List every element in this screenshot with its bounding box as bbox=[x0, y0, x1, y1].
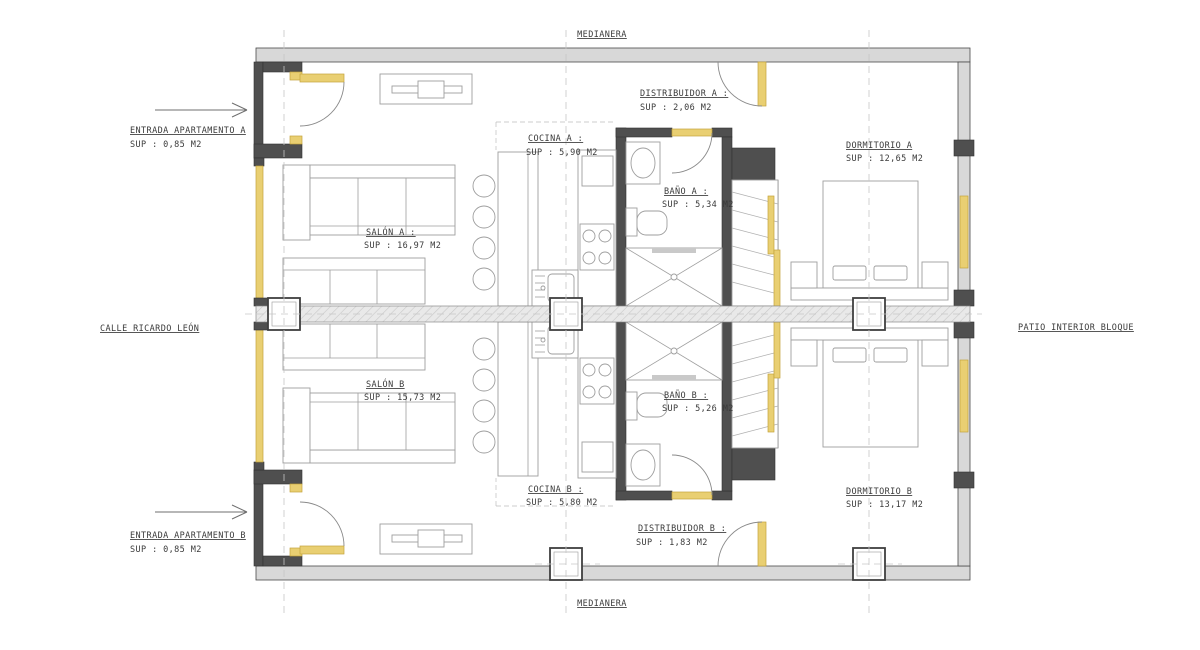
label-salon-b-title: SALÓN B bbox=[366, 378, 405, 390]
label-dormitorio-a-area: SUP : 12,65 M2 bbox=[846, 154, 923, 164]
label-patio: PATIO INTERIOR BLOQUE bbox=[1018, 323, 1134, 333]
label-distribuidor-a-area: SUP : 2,06 M2 bbox=[640, 103, 712, 113]
label-cocina-b-area: SUP : 5,80 M2 bbox=[526, 498, 598, 508]
label-entrance-a-title: ENTRADA APARTAMENTO A bbox=[130, 126, 246, 136]
entrance-a-arrow-icon bbox=[155, 103, 247, 117]
label-cocina-b-title: COCINA B : bbox=[528, 485, 583, 495]
label-dormitorio-b-title: DORMITORIO B bbox=[846, 487, 912, 497]
label-street: CALLE RICARDO LEÓN bbox=[100, 322, 199, 334]
label-medianera-top: MEDIANERA bbox=[577, 30, 627, 40]
label-cocina-a-title: COCINA A : bbox=[528, 134, 583, 144]
apartment-a-plan bbox=[254, 48, 974, 306]
label-salon-b-area: SUP : 15,73 M2 bbox=[364, 393, 441, 403]
label-distribuidor-a-title: DISTRIBUIDOR A : bbox=[640, 89, 728, 99]
label-distribuidor-b-area: SUP : 1,83 M2 bbox=[636, 538, 708, 548]
apartment-b-plan bbox=[254, 322, 974, 580]
label-medianera-bottom: MEDIANERA bbox=[577, 599, 627, 609]
label-dormitorio-a-title: DORMITORIO A bbox=[846, 141, 912, 151]
label-salon-a-title: SALÓN A : bbox=[366, 226, 416, 238]
label-bano-a-area: SUP : 5,34 M2 bbox=[662, 200, 734, 210]
label-entrance-b-title: ENTRADA APARTAMENTO B bbox=[130, 531, 246, 541]
label-dormitorio-b-area: SUP : 13,17 M2 bbox=[846, 500, 923, 510]
label-distribuidor-b-title: DISTRIBUIDOR B : bbox=[638, 524, 726, 534]
label-salon-a-area: SUP : 16,97 M2 bbox=[364, 241, 441, 251]
entrance-b-arrow-icon bbox=[155, 505, 247, 519]
label-bano-a-title: BAÑO A : bbox=[664, 186, 708, 197]
label-cocina-a-area: SUP : 5,90 M2 bbox=[526, 148, 598, 158]
label-entrance-a-area: SUP : 0,85 M2 bbox=[130, 140, 202, 150]
label-bano-b-title: BAÑO B : bbox=[664, 390, 708, 401]
label-bano-b-area: SUP : 5,26 M2 bbox=[662, 404, 734, 414]
floor-plan-drawing: MEDIANERA MEDIANERA CALLE RICARDO LEÓN P… bbox=[0, 0, 1200, 650]
label-entrance-b-area: SUP : 0,85 M2 bbox=[130, 545, 202, 555]
